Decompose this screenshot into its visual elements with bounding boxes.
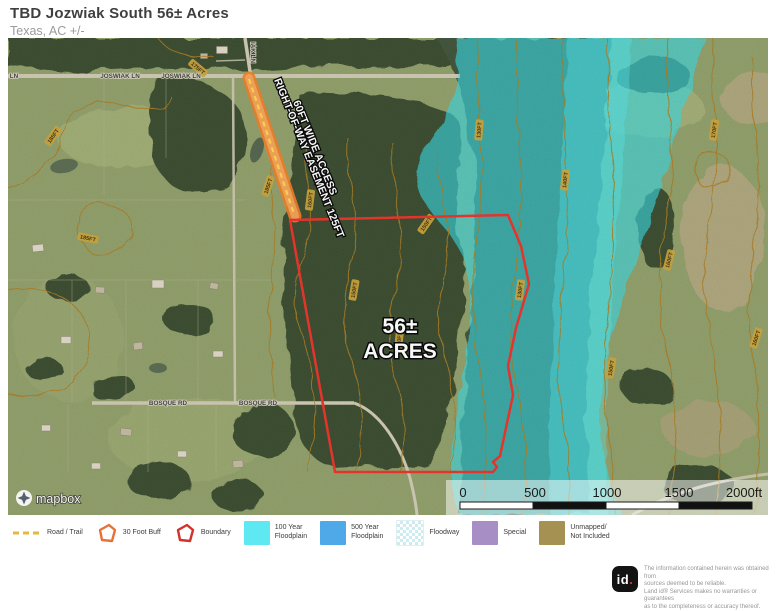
legend-label: Unmapped/ Not Included — [570, 524, 609, 542]
disclaimer-line: Land id® Services makes no warranties or… — [644, 589, 776, 604]
disclaimer-line: sources deemed to be reliable. — [644, 581, 776, 589]
scale-tick-0: 0 — [459, 485, 466, 500]
map-canvas[interactable]: 185FT 185FT 175FT 160FT 150FT 140FT 150F… — [8, 38, 768, 515]
floodplain-100-swatch-icon — [244, 521, 270, 545]
legend-item-unmapped: Unmapped/ Not Included — [539, 521, 609, 545]
legend-text: 100 Year — [275, 524, 307, 533]
scale-tick-1500: 1500 — [665, 485, 694, 500]
legend-text: Special — [503, 529, 526, 536]
buffer-swatch-icon — [96, 523, 118, 544]
legend-text: Boundary — [201, 529, 231, 536]
aerial-grain-light — [8, 38, 768, 515]
legend-text: Road / Trail — [47, 529, 83, 536]
floodplain-500-swatch-icon — [320, 521, 346, 545]
legend-label: Boundary — [201, 529, 231, 538]
legend-text: Floodplain — [351, 533, 383, 542]
unmapped-swatch-icon — [539, 521, 565, 545]
legend-text: 30 Foot Buff — [123, 529, 161, 536]
road-trail-swatch-icon — [12, 529, 42, 537]
page-subtitle: Texas, AC +/- — [10, 24, 229, 38]
special-swatch-icon — [472, 521, 498, 545]
scale-tick-2000: 2000ft — [726, 485, 763, 500]
legend-text: 500 Year — [351, 524, 383, 533]
page-title: TBD Jozwiak South 56± Acres — [10, 5, 229, 22]
legend-item-30ft-buffer: 30 Foot Buff — [96, 523, 161, 544]
floodway-swatch-icon — [396, 520, 424, 546]
disclaimer-line: as to the completeness or accuracy there… — [644, 604, 776, 611]
logo-dot: . — [629, 572, 633, 587]
legend-text: Floodplain — [275, 533, 307, 542]
disclaimer-line: The information contained herein was obt… — [644, 566, 776, 581]
legend-text: Not Included — [570, 533, 609, 542]
disclaimer-text: The information contained herein was obt… — [644, 566, 776, 611]
legend-label: Road / Trail — [47, 529, 83, 538]
legend-item-floodway: Floodway — [396, 520, 459, 546]
legend-item-road-trail: Road / Trail — [12, 529, 83, 538]
scale-bar: 0 500 1000 1500 2000ft — [446, 480, 768, 515]
scale-tick-500: 500 — [524, 485, 546, 500]
footer: id. The information contained herein was… — [612, 566, 776, 611]
mapbox-attribution[interactable]: mapbox — [16, 490, 81, 506]
page-header: TBD Jozwiak South 56± Acres Texas, AC +/… — [10, 5, 229, 38]
legend-label: 30 Foot Buff — [123, 529, 161, 538]
legend-label: Floodway — [429, 529, 459, 538]
legend-text: Unmapped/ — [570, 524, 609, 533]
legend-item-500yr-floodplain: 500 Year Floodplain — [320, 521, 383, 545]
boundary-swatch-icon — [174, 523, 196, 544]
legend-label: Special — [503, 529, 526, 538]
legend-label: 500 Year Floodplain — [351, 524, 383, 542]
logo-text: id — [617, 572, 630, 587]
scale-tick-1000: 1000 — [593, 485, 622, 500]
mapbox-wordmark[interactable]: mapbox — [36, 492, 81, 506]
legend-item-boundary: Boundary — [174, 523, 231, 544]
legend-item-special: Special — [472, 521, 526, 545]
map-legend: Road / Trail 30 Foot Buff Boundary 100 Y… — [12, 520, 572, 546]
land-id-logo: id. — [612, 566, 638, 592]
legend-label: 100 Year Floodplain — [275, 524, 307, 542]
legend-item-100yr-floodplain: 100 Year Floodplain — [244, 521, 307, 545]
legend-text: Floodway — [429, 529, 459, 536]
